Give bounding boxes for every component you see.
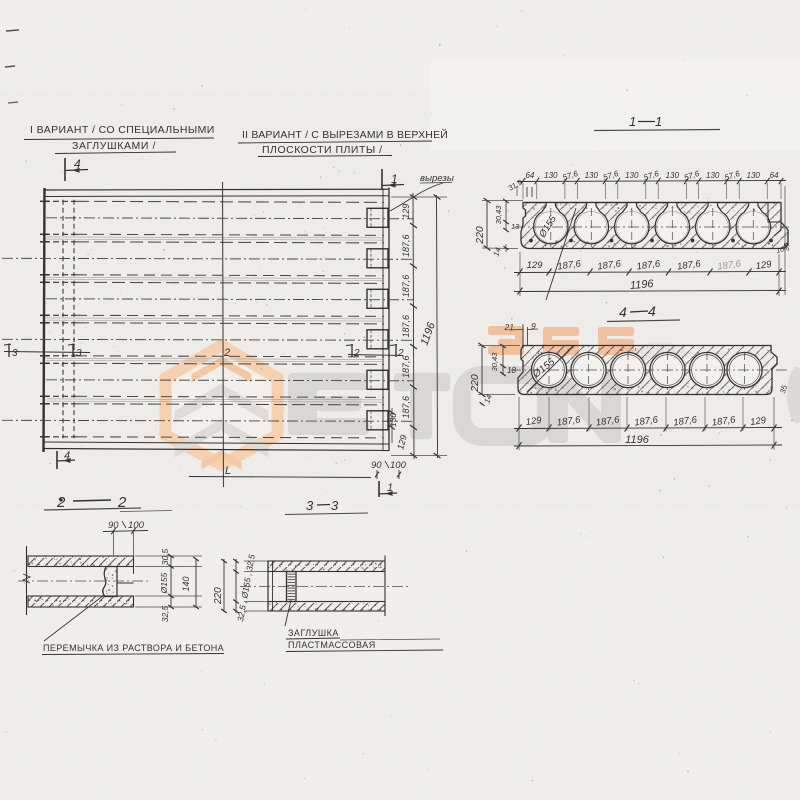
svg-text:3: 3 bbox=[12, 348, 18, 359]
svg-text:ЗАГЛУШКА: ЗАГЛУШКА bbox=[288, 628, 339, 638]
svg-text:ЗАГЛУШКАМИ /: ЗАГЛУШКАМИ / bbox=[72, 140, 156, 152]
svg-text:187,6: 187,6 bbox=[401, 275, 411, 298]
svg-text:32,5: 32,5 bbox=[160, 605, 170, 622]
svg-text:ПЛАСТМАССОВАЯ: ПЛАСТМАССОВАЯ bbox=[288, 640, 376, 650]
svg-text:187,6: 187,6 bbox=[401, 315, 411, 338]
svg-text:130: 130 bbox=[585, 171, 599, 180]
svg-text:130: 130 bbox=[666, 171, 680, 180]
svg-text:64: 64 bbox=[525, 171, 534, 180]
svg-text:100: 100 bbox=[128, 520, 145, 531]
svg-text:130: 130 bbox=[625, 171, 639, 180]
svg-text:2: 2 bbox=[353, 348, 360, 359]
svg-text:130: 130 bbox=[706, 171, 720, 180]
svg-text:129: 129 bbox=[755, 259, 773, 272]
svg-text:1196: 1196 bbox=[629, 278, 654, 292]
svg-text:130: 130 bbox=[747, 171, 761, 180]
svg-text:L: L bbox=[225, 465, 231, 477]
svg-text:129: 129 bbox=[401, 204, 411, 219]
svg-text:I ВАРИАНТ / СО СПЕЦИАЛЬНЫМИ: I ВАРИАНТ / СО СПЕЦИАЛЬНЫМИ bbox=[30, 124, 215, 136]
svg-text:4: 4 bbox=[648, 303, 656, 319]
svg-text:129: 129 bbox=[527, 260, 544, 271]
svg-text:ПЕРЕМЫЧКА ИЗ РАСТВОРА И БЕТОНА: ПЕРЕМЫЧКА ИЗ РАСТВОРА И БЕТОНА bbox=[43, 643, 224, 653]
svg-text:100: 100 bbox=[390, 460, 407, 471]
svg-text:187,6: 187,6 bbox=[401, 234, 411, 257]
svg-text:1: 1 bbox=[655, 114, 662, 129]
svg-text:30,43: 30,43 bbox=[490, 352, 499, 372]
svg-text:Ø155: Ø155 bbox=[159, 572, 169, 594]
svg-text:220: 220 bbox=[474, 226, 486, 245]
svg-text:4: 4 bbox=[74, 157, 81, 171]
svg-text:21: 21 bbox=[504, 322, 515, 332]
svg-text:1: 1 bbox=[391, 172, 398, 186]
svg-text:129: 129 bbox=[525, 415, 543, 428]
svg-text:220: 220 bbox=[213, 587, 224, 605]
svg-text:3: 3 bbox=[76, 348, 82, 359]
svg-text:30,43: 30,43 bbox=[494, 205, 503, 225]
svg-text:1: 1 bbox=[387, 482, 393, 494]
svg-text:90: 90 bbox=[371, 460, 382, 471]
svg-text:140: 140 bbox=[181, 576, 191, 591]
svg-text:II ВАРИАНТ / С ВЫРЕЗАМИ В ВЕР: II ВАРИАНТ / С ВЫРЕЗАМИ В ВЕРХНЕЙ bbox=[242, 128, 448, 141]
svg-text:18: 18 bbox=[507, 366, 516, 375]
svg-text:187,6: 187,6 bbox=[401, 396, 411, 419]
svg-text:130: 130 bbox=[544, 171, 558, 180]
svg-text:9: 9 bbox=[531, 321, 536, 331]
svg-text:3: 3 bbox=[306, 498, 314, 513]
svg-text:64: 64 bbox=[770, 171, 779, 180]
svg-text:129: 129 bbox=[750, 415, 768, 428]
svg-text:2: 2 bbox=[223, 347, 230, 359]
svg-text:13: 13 bbox=[511, 222, 520, 231]
svg-text:1: 1 bbox=[629, 114, 636, 129]
svg-text:ПЛОСКОСТИ ПЛИТЫ /: ПЛОСКОСТИ ПЛИТЫ / bbox=[262, 144, 383, 156]
svg-text:4: 4 bbox=[619, 304, 627, 320]
svg-text:1196: 1196 bbox=[625, 434, 650, 446]
svg-text:130: 130 bbox=[388, 413, 398, 427]
svg-text:2: 2 bbox=[56, 494, 66, 511]
svg-text:187,6: 187,6 bbox=[401, 355, 411, 378]
svg-text:220: 220 bbox=[469, 374, 481, 393]
svg-text:4: 4 bbox=[64, 450, 70, 462]
svg-text:30,5: 30,5 bbox=[160, 548, 170, 565]
svg-text:90: 90 bbox=[108, 520, 119, 531]
svg-text:3: 3 bbox=[331, 498, 339, 513]
